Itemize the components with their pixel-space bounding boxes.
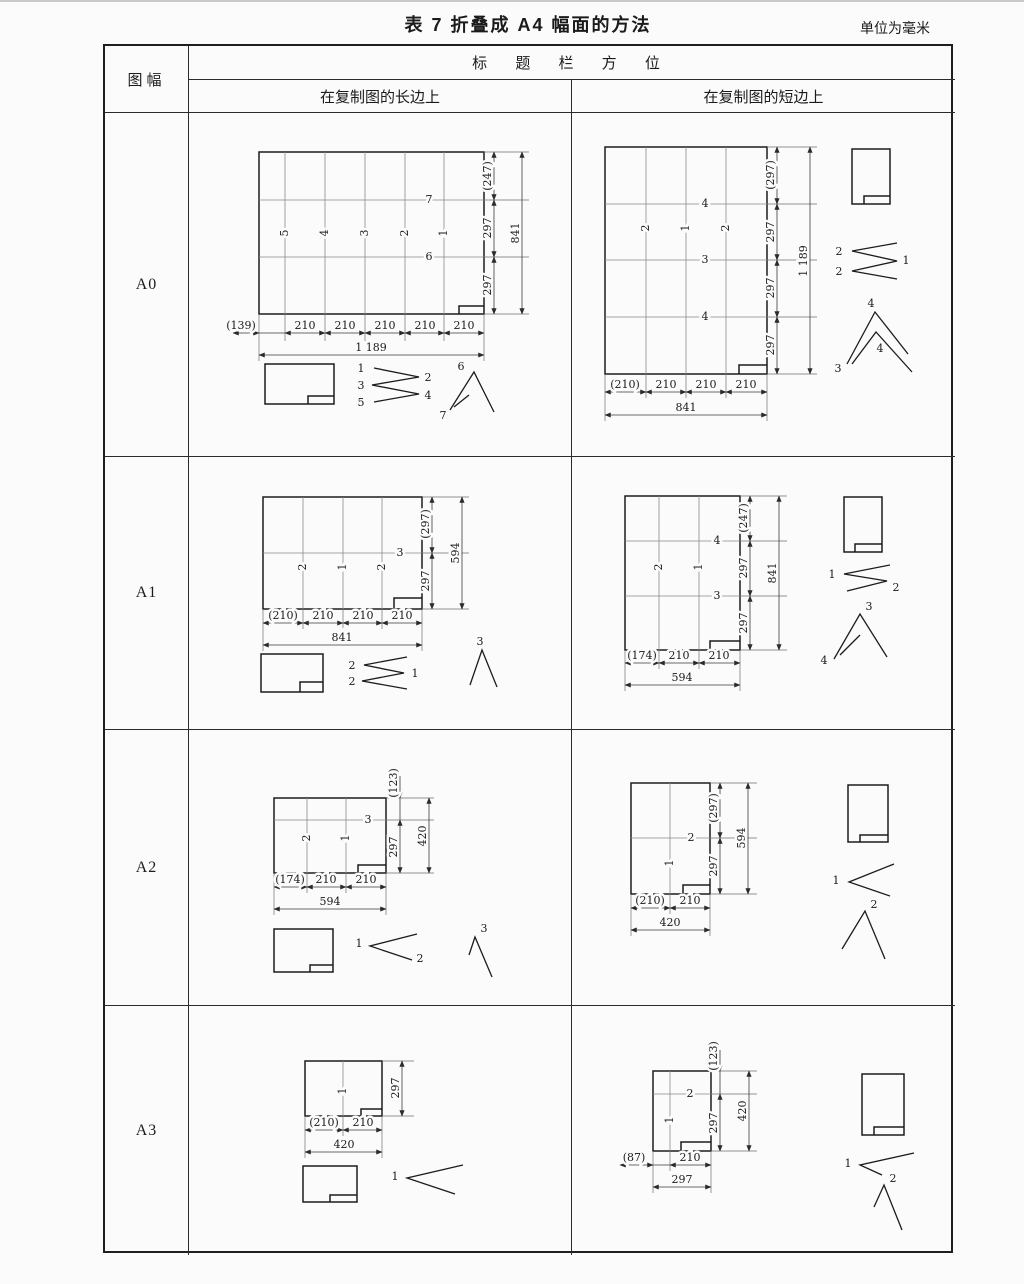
cell-a1-short-edge: 2 1 4 3 (247) 297 297 841 (174) 210 210 … bbox=[572, 457, 955, 730]
title-block-notch bbox=[394, 598, 422, 609]
fold-number: 2 bbox=[719, 225, 732, 232]
fold-number: 2 bbox=[687, 1087, 694, 1100]
header-title-block-orientation: 标 题 栏 方 位 bbox=[189, 46, 955, 80]
dim-label: (174) bbox=[275, 873, 305, 886]
a0-short-fold-diagram: 2 1 2 4 3 4 (297) 297 297 297 1 189 bbox=[572, 113, 955, 457]
fold-number: 2 bbox=[688, 831, 695, 844]
dim-label: 210 bbox=[335, 319, 356, 332]
dim-label: 210 bbox=[454, 319, 475, 332]
fold-number: 6 bbox=[458, 360, 465, 373]
dim-label: 210 bbox=[295, 319, 316, 332]
title-block-notch bbox=[681, 1142, 711, 1151]
units-note: 单位为毫米 bbox=[860, 18, 930, 38]
dim-label: 594 bbox=[735, 828, 748, 849]
dim-label: 297 bbox=[481, 275, 494, 296]
header-long-edge: 在复制图的长边上 bbox=[189, 80, 572, 113]
dim-label: 210 bbox=[375, 319, 396, 332]
fold-number: 1 bbox=[829, 568, 836, 581]
dim-label: 420 bbox=[736, 1101, 749, 1122]
dim-label: 297 bbox=[737, 613, 750, 634]
fold-number: 4 bbox=[702, 197, 709, 210]
dim-label: 594 bbox=[449, 543, 462, 564]
title-block-notch bbox=[855, 544, 882, 552]
fold-number: 5 bbox=[278, 230, 291, 237]
fold-number: 7 bbox=[440, 409, 447, 422]
main-sheet-diagram: 2 1 3 (123) 297 420 (174) 210 210 594 bbox=[274, 768, 434, 915]
dim-label: 297 bbox=[707, 856, 720, 877]
dim-label: 210 bbox=[392, 609, 413, 622]
a3-long-fold-diagram: 1 297 (210) 210 420 1 bbox=[189, 1006, 572, 1255]
fold-number: 2 bbox=[639, 225, 652, 232]
folded-result bbox=[848, 785, 888, 842]
dim-label: 297 bbox=[764, 335, 777, 356]
dim-label: (297) bbox=[419, 509, 432, 539]
chevron-fold-glyph: 4 4 3 bbox=[835, 297, 913, 375]
row-label-a2: A2 bbox=[105, 730, 189, 1006]
dim-label: 210 bbox=[696, 378, 717, 391]
zigzag-fold-glyph: 2 2 1 bbox=[349, 657, 419, 689]
folded-result bbox=[844, 497, 882, 552]
fold-number: 4 bbox=[702, 310, 709, 323]
dim-label: 210 bbox=[353, 609, 374, 622]
a3-short-fold-diagram: 1 2 (123) 297 420 (87) 210 297 bbox=[572, 1006, 955, 1255]
fold-number: 2 bbox=[417, 952, 424, 965]
fold-number: 6 bbox=[426, 250, 433, 263]
fold-number: 1 bbox=[437, 230, 450, 237]
dim-label: 1 189 bbox=[797, 245, 810, 277]
fold-number: 1 bbox=[679, 225, 692, 232]
fold-number: 2 bbox=[349, 675, 356, 688]
cell-a0-long-edge: 5 4 3 2 1 7 6 (247) 297 297 841 bbox=[189, 113, 572, 457]
dim-label: (174) bbox=[627, 649, 657, 662]
fold-number: 4 bbox=[868, 297, 875, 310]
fold-number: 4 bbox=[877, 342, 884, 355]
dim-label: 420 bbox=[416, 826, 429, 847]
fold-number: 1 bbox=[903, 254, 910, 267]
row-label-a3: A3 bbox=[105, 1006, 189, 1255]
dim-label: 297 bbox=[481, 218, 494, 239]
dim-label: (210) bbox=[635, 894, 665, 907]
title-block-notch bbox=[739, 365, 767, 374]
dim-label: (123) bbox=[387, 768, 400, 798]
fold-number: 5 bbox=[358, 396, 365, 409]
dim-label: 297 bbox=[764, 222, 777, 243]
dim-label: 297 bbox=[419, 571, 432, 592]
dim-label: 841 bbox=[332, 631, 353, 644]
title-block-notch bbox=[864, 196, 890, 204]
fold-number: 2 bbox=[652, 564, 665, 571]
title-block-notch bbox=[361, 1109, 382, 1116]
fold-number: 2 bbox=[871, 898, 878, 911]
fold-number: 4 bbox=[714, 534, 721, 547]
main-sheet-diagram: 2 1 4 3 (247) 297 297 841 (174) 210 210 … bbox=[625, 496, 787, 691]
zigzag-fold-glyph: 1 bbox=[392, 1165, 464, 1194]
main-sheet-diagram: 1 2 (297) 297 594 (210) 210 420 bbox=[631, 783, 757, 936]
dim-label: 841 bbox=[676, 401, 697, 414]
chevron-fold-glyph: 2 bbox=[842, 898, 885, 959]
row-label-a0: A0 bbox=[105, 113, 189, 457]
main-sheet-diagram: 1 297 (210) 210 420 bbox=[305, 1061, 414, 1158]
cell-a1-long-edge: 2 1 2 3 (297) 297 594 (210) 210 210 210 bbox=[189, 457, 572, 730]
dim-label: 210 bbox=[656, 378, 677, 391]
fold-number: 7 bbox=[426, 193, 433, 206]
fold-number: 3 bbox=[358, 379, 365, 392]
chevron-fold-glyph: 6 7 bbox=[440, 360, 495, 422]
main-sheet-diagram: 2 1 2 3 (297) 297 594 (210) 210 210 210 bbox=[263, 497, 469, 651]
fold-number: 1 bbox=[356, 937, 363, 950]
dim-label: 841 bbox=[766, 563, 779, 584]
dim-label: 210 bbox=[736, 378, 757, 391]
fold-number: 4 bbox=[318, 230, 331, 237]
fold-number: 1 bbox=[339, 835, 352, 842]
fold-number: 2 bbox=[398, 230, 411, 237]
zigzag-fold-glyph: 1 bbox=[845, 1153, 915, 1175]
dim-label: 297 bbox=[387, 837, 400, 858]
dim-label: (247) bbox=[481, 161, 494, 191]
dim-label: 210 bbox=[313, 609, 334, 622]
fold-number: 1 bbox=[833, 874, 840, 887]
dim-label: (87) bbox=[623, 1151, 646, 1164]
a1-long-fold-diagram: 2 1 2 3 (297) 297 594 (210) 210 210 210 bbox=[189, 457, 572, 730]
chevron-fold-glyph: 3 4 bbox=[821, 600, 888, 667]
folded-result bbox=[274, 929, 333, 972]
dim-label: 210 bbox=[353, 1116, 374, 1129]
fold-number: 4 bbox=[821, 654, 828, 667]
dim-label: 210 bbox=[680, 1151, 701, 1164]
fold-number: 3 bbox=[835, 362, 842, 375]
fold-number: 2 bbox=[296, 564, 309, 571]
fold-number: 3 bbox=[702, 253, 709, 266]
dim-label: (210) bbox=[268, 609, 298, 622]
folded-result bbox=[261, 654, 323, 692]
title-block-notch bbox=[310, 965, 333, 972]
fold-number: 2 bbox=[300, 835, 313, 842]
dim-label: 297 bbox=[707, 1113, 720, 1134]
chevron-fold-glyph: 3 bbox=[469, 922, 492, 977]
title-block-notch bbox=[308, 396, 334, 404]
zigzag-fold-glyph: 1 3 5 2 4 bbox=[358, 362, 432, 409]
dim-label: 210 bbox=[680, 894, 701, 907]
title-block-notch bbox=[330, 1195, 357, 1202]
dim-label: 841 bbox=[509, 223, 522, 244]
folded-result bbox=[303, 1166, 357, 1202]
title-block-notch bbox=[683, 885, 710, 894]
dim-label: (139) bbox=[226, 319, 256, 332]
folded-result bbox=[862, 1074, 904, 1135]
fold-number: 1 bbox=[663, 1117, 676, 1124]
dim-label: 420 bbox=[660, 916, 681, 929]
zigzag-fold-glyph: 2 2 1 bbox=[836, 243, 910, 279]
dim-label: (297) bbox=[764, 160, 777, 190]
title-block-notch bbox=[459, 306, 484, 314]
fold-number: 1 bbox=[336, 564, 349, 571]
row-label-a1: A1 bbox=[105, 457, 189, 730]
dim-label: (210) bbox=[610, 378, 640, 391]
dim-label: (210) bbox=[309, 1116, 339, 1129]
fold-number: 2 bbox=[836, 265, 843, 278]
cell-a2-short-edge: 1 2 (297) 297 594 (210) 210 420 1 bbox=[572, 730, 955, 1006]
a1-short-fold-diagram: 2 1 4 3 (247) 297 297 841 (174) 210 210 … bbox=[572, 457, 955, 730]
fold-number: 3 bbox=[397, 546, 404, 559]
dim-label: 297 bbox=[764, 278, 777, 299]
folded-result bbox=[852, 149, 890, 204]
cell-a3-short-edge: 1 2 (123) 297 420 (87) 210 297 bbox=[572, 1006, 955, 1255]
dim-label: (123) bbox=[707, 1041, 720, 1071]
dim-label: 594 bbox=[320, 895, 341, 908]
fold-number: 1 bbox=[358, 362, 365, 375]
fold-number: 2 bbox=[349, 659, 356, 672]
zigzag-fold-glyph: 1 bbox=[833, 864, 895, 896]
zigzag-fold-glyph: 1 2 bbox=[829, 565, 900, 594]
fold-number: 2 bbox=[375, 564, 388, 571]
fold-number: 4 bbox=[425, 389, 432, 402]
chevron-fold-glyph: 3 bbox=[470, 635, 497, 687]
title-block-notch bbox=[358, 865, 386, 873]
dim-label: (297) bbox=[707, 793, 720, 823]
fold-number: 2 bbox=[425, 371, 432, 384]
dim-label: 210 bbox=[356, 873, 377, 886]
fold-number: 1 bbox=[692, 564, 705, 571]
fold-number: 3 bbox=[866, 600, 873, 613]
dim-label: 420 bbox=[334, 1138, 355, 1151]
fold-number: 3 bbox=[714, 589, 721, 602]
a2-short-fold-diagram: 1 2 (297) 297 594 (210) 210 420 1 bbox=[572, 730, 955, 1006]
title-block-notch bbox=[300, 682, 323, 692]
cell-a2-long-edge: 2 1 3 (123) 297 420 (174) 210 210 594 bbox=[189, 730, 572, 1006]
fold-number: 1 bbox=[336, 1088, 349, 1095]
fold-methods-table: 图幅 标 题 栏 方 位 在复制图的长边上 在复制图的短边上 A0 A1 A2 … bbox=[103, 44, 953, 1253]
dim-label: 297 bbox=[672, 1173, 693, 1186]
header-figure-column: 图幅 bbox=[105, 46, 189, 113]
dim-label: 297 bbox=[737, 558, 750, 579]
main-sheet-diagram: 5 4 3 2 1 7 6 (247) 297 297 841 bbox=[226, 152, 529, 361]
dim-label: 210 bbox=[669, 649, 690, 662]
dim-label: 210 bbox=[415, 319, 436, 332]
fold-number: 2 bbox=[890, 1172, 897, 1185]
fold-number: 2 bbox=[893, 581, 900, 594]
title-block-notch bbox=[874, 1127, 904, 1135]
fold-number: 1 bbox=[845, 1157, 852, 1170]
dim-label: 297 bbox=[389, 1078, 402, 1099]
a0-long-fold-diagram: 5 4 3 2 1 7 6 (247) 297 297 841 bbox=[189, 113, 572, 457]
dim-label: 210 bbox=[709, 649, 730, 662]
fold-number: 3 bbox=[365, 813, 372, 826]
fold-number: 2 bbox=[836, 245, 843, 258]
dim-label: 594 bbox=[672, 671, 693, 684]
zigzag-fold-glyph: 1 2 bbox=[356, 934, 424, 965]
folded-result bbox=[265, 364, 334, 404]
dim-label: 1 189 bbox=[355, 341, 387, 354]
chevron-fold-glyph: 2 bbox=[874, 1172, 902, 1230]
fold-number: 3 bbox=[477, 635, 484, 648]
cell-a3-long-edge: 1 297 (210) 210 420 1 bbox=[189, 1006, 572, 1255]
scan-edge-artifact bbox=[0, 0, 1024, 2]
fold-number: 1 bbox=[412, 667, 419, 680]
title-block-notch bbox=[860, 835, 888, 842]
fold-number: 1 bbox=[663, 860, 676, 867]
dim-label: 210 bbox=[316, 873, 337, 886]
dim-label: (247) bbox=[737, 503, 750, 533]
fold-number: 1 bbox=[392, 1170, 399, 1183]
a2-long-fold-diagram: 2 1 3 (123) 297 420 (174) 210 210 594 bbox=[189, 730, 572, 1006]
main-sheet-diagram: 1 2 (123) 297 420 (87) 210 297 bbox=[620, 1041, 757, 1193]
table-caption: 表 7 折叠成 A4 幅面的方法 bbox=[103, 11, 953, 37]
fold-number: 3 bbox=[358, 230, 371, 237]
cell-a0-short-edge: 2 1 2 4 3 4 (297) 297 297 297 1 189 bbox=[572, 113, 955, 457]
header-short-edge: 在复制图的短边上 bbox=[572, 80, 955, 113]
main-sheet-diagram: 2 1 2 4 3 4 (297) 297 297 297 1 189 bbox=[605, 147, 817, 421]
fold-number: 3 bbox=[481, 922, 488, 935]
